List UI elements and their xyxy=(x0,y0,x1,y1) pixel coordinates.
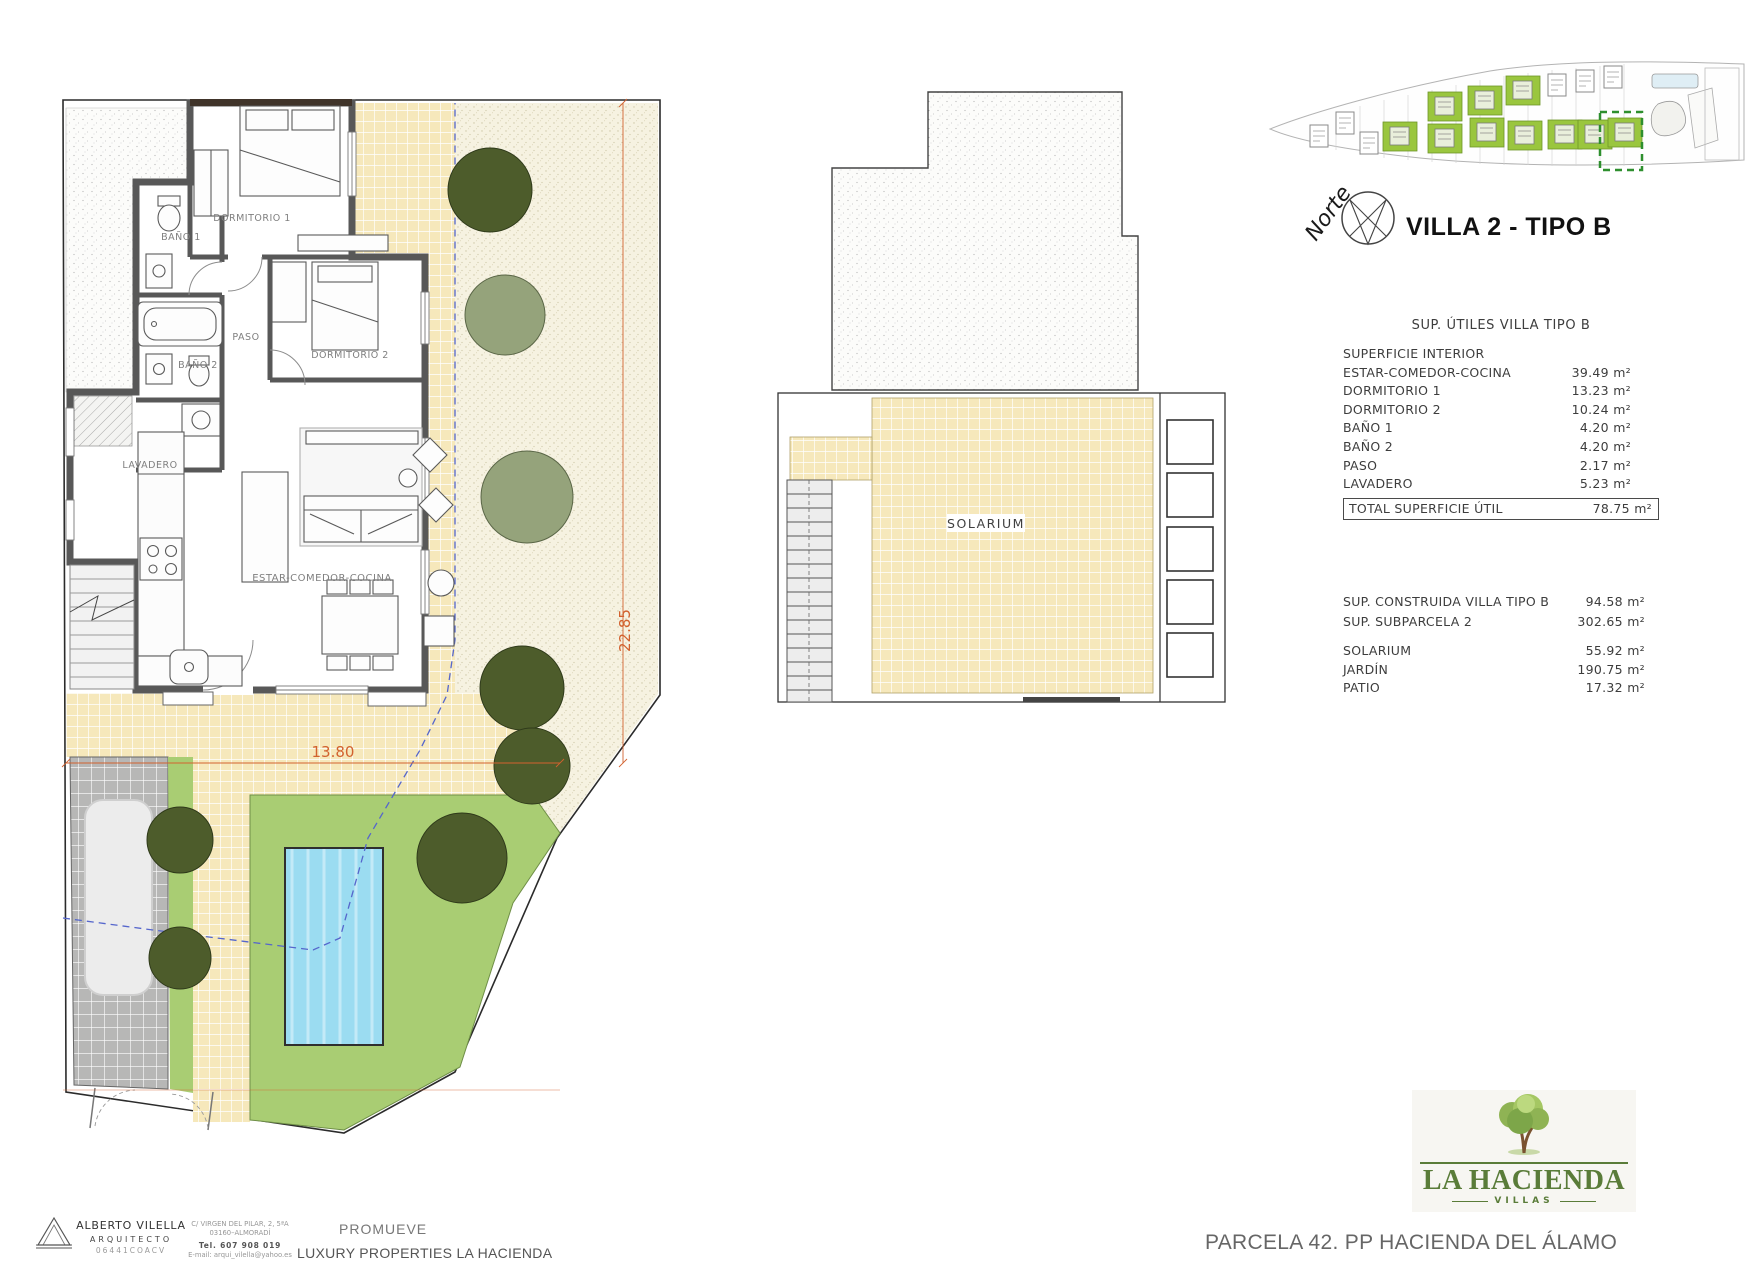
swimming-pool xyxy=(285,848,383,1045)
solarium-stairs xyxy=(787,480,832,702)
dimension-width: 13.80 xyxy=(312,743,355,761)
room-label-paso: PASO xyxy=(232,332,259,343)
roof-area xyxy=(832,92,1138,390)
logo-rule-left xyxy=(1452,1201,1488,1202)
logo-rule-right xyxy=(1560,1201,1596,1202)
pergola-beams xyxy=(1167,420,1213,677)
table-row: PASO2.17 m² xyxy=(1343,458,1659,477)
compass: Norte xyxy=(1301,181,1394,245)
useful-areas-table: SUP. ÚTILES VILLA TIPO B SUPERFICIE INTE… xyxy=(1343,318,1659,520)
brand-name: LA HACIENDA xyxy=(1412,1166,1636,1195)
table-row: LAVADERO5.23 m² xyxy=(1343,476,1659,495)
page-title: VILLA 2 - TIPO B xyxy=(1406,213,1612,242)
useful-areas-title: SUP. ÚTILES VILLA TIPO B xyxy=(1343,318,1659,333)
promoter-name: LUXURY PROPERTIES LA HACIENDA xyxy=(297,1245,552,1261)
table-row: JARDÍN190.75 m² xyxy=(1343,662,1645,681)
brand-subtitle: VILLAS xyxy=(1494,1196,1553,1206)
room-label-lavadero: LAVADERO xyxy=(122,460,177,471)
architect-name: ALBERTO VILELLA xyxy=(70,1219,192,1232)
contact-address1: C/ VIRGEN DEL PILAR, 2, 5ªA xyxy=(184,1220,296,1229)
room-label-bano-1: BAÑO 1 xyxy=(161,232,201,243)
room-label-bano-2: BAÑO 2 xyxy=(178,360,218,371)
total-row: TOTAL SUPERFICIE ÚTIL78.75 m² xyxy=(1343,498,1659,520)
exterior-stairs xyxy=(70,565,134,689)
summary-table: SUP. CONSTRUIDA VILLA TIPO B94.58 m² SUP… xyxy=(1343,594,1645,699)
main-floor-plan: DORMITORIO 1 DORMITORIO 2 BAÑO 1 BAÑO 2 … xyxy=(62,99,660,1133)
architect-role: ARQUITECTO xyxy=(70,1235,192,1244)
architect-license: 06441COACV xyxy=(70,1246,192,1255)
table-row: ESTAR-COMEDOR-COCINA39.49 m² xyxy=(1343,365,1659,384)
table-row: SUPERFICIE INTERIOR xyxy=(1343,346,1659,365)
contact-email: E-mail: arqui_vilella@yahoo.es xyxy=(184,1251,296,1260)
contact-address2: 03160–ALMORADÍ xyxy=(184,1229,296,1238)
promoter-heading: PROMUEVE xyxy=(339,1221,552,1237)
architect-contact: C/ VIRGEN DEL PILAR, 2, 5ªA 03160–ALMORA… xyxy=(184,1220,296,1261)
site-map xyxy=(1270,62,1744,170)
table-row: BAÑO 24.20 m² xyxy=(1343,439,1659,458)
plan-sheet: DORMITORIO 1 DORMITORIO 2 BAÑO 1 BAÑO 2 … xyxy=(0,0,1749,1284)
parcel-title: PARCELA 42. PP HACIENDA DEL ÁLAMO xyxy=(1205,1231,1617,1255)
solarium-plan: SOLARIUM xyxy=(778,92,1225,702)
table-row: DORMITORIO 113.23 m² xyxy=(1343,383,1659,402)
architect-logo-icon xyxy=(36,1216,72,1250)
room-label-dormitorio-2: DORMITORIO 2 xyxy=(311,350,389,361)
table-row: SUP. CONSTRUIDA VILLA TIPO B94.58 m² xyxy=(1343,594,1645,614)
table-row: SUP. SUBPARCELA 2302.65 m² xyxy=(1343,614,1645,634)
contact-phone: Tel. 607 908 019 xyxy=(184,1241,296,1251)
solarium-label: SOLARIUM xyxy=(947,516,1025,531)
room-label-dormitorio-1: DORMITORIO 1 xyxy=(213,213,291,224)
dimension-depth: 22.85 xyxy=(616,609,634,652)
room-label-estar: ESTAR-COMEDOR-COCINA xyxy=(252,573,392,584)
table-row: SOLARIUM55.92 m² xyxy=(1343,643,1645,662)
logo-rule-top xyxy=(1420,1162,1628,1164)
table-row: BAÑO 14.20 m² xyxy=(1343,420,1659,439)
promoter-block: PROMUEVE LUXURY PROPERTIES LA HACIENDA xyxy=(297,1221,552,1261)
tree-icon xyxy=(1492,1094,1556,1156)
architect-block: ALBERTO VILELLA ARQUITECTO 06441COACV xyxy=(70,1219,192,1255)
car xyxy=(85,800,152,995)
table-row: PATIO17.32 m² xyxy=(1343,680,1645,699)
brand-logo: LA HACIENDA VILLAS xyxy=(1412,1090,1636,1212)
brand-subtitle-row: VILLAS xyxy=(1412,1196,1636,1206)
table-row: DORMITORIO 210.24 m² xyxy=(1343,402,1659,421)
